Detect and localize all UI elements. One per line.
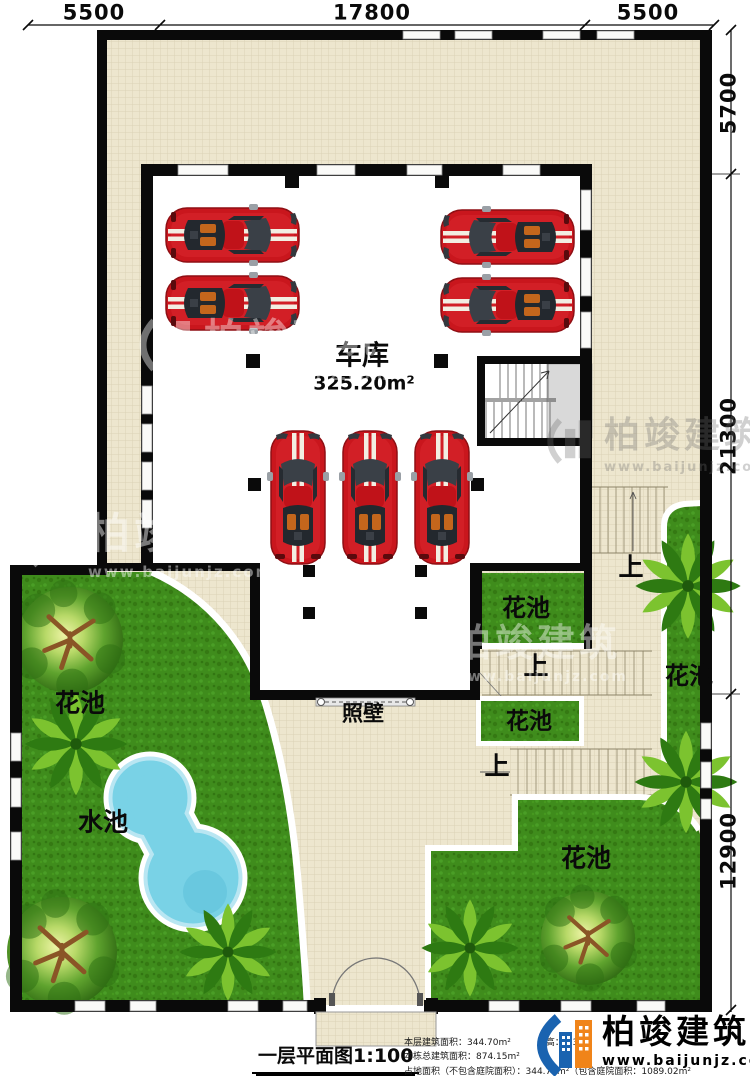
- stairs-up-label: 上: [618, 555, 643, 580]
- dim-right-lower: 12900: [719, 812, 740, 890]
- screen-wall-label: 照壁: [342, 704, 384, 725]
- pool-label: 水池: [78, 810, 128, 835]
- stairs-up-label: 上: [523, 654, 548, 679]
- dim-top-right: 5500: [617, 3, 679, 24]
- dim-right-upper: 5700: [719, 72, 740, 134]
- dim-top-center: 17800: [333, 3, 411, 24]
- floor-plan-drawing: [0, 0, 750, 1080]
- drawing-title: 一层平面图1:100: [252, 1041, 419, 1074]
- car: [411, 431, 473, 564]
- dim-right-middle: 21300: [719, 397, 740, 475]
- dim-top-left: 5500: [63, 3, 125, 24]
- garage-label: 车库: [335, 343, 389, 370]
- car: [267, 431, 329, 564]
- car: [166, 272, 299, 334]
- brand-url: www.baijunjz.com: [602, 1053, 750, 1069]
- flower-bed-label: 花池: [506, 711, 552, 734]
- floor-plan-page: 5500 17800 5500 5700 21300 12900 车库 325.…: [0, 0, 750, 1080]
- info-floor-area: 本层建筑面积：344.70m²: [404, 1038, 511, 1048]
- flower-bed-label: 花池: [561, 846, 611, 871]
- car: [441, 206, 574, 268]
- flower-bed-label: 花池: [55, 691, 105, 716]
- stairs-up-label: 上: [484, 754, 509, 779]
- brand-logo-icon: [534, 1014, 596, 1076]
- car: [339, 431, 401, 564]
- car: [441, 274, 574, 336]
- garage-area-label: 325.20m²: [313, 375, 414, 394]
- brand-name: 柏竣建筑: [602, 1014, 750, 1050]
- flower-bed-label: 花池: [502, 596, 550, 620]
- car: [166, 204, 299, 266]
- brand-logo-block: 柏竣建筑 www.baijunjz.com: [534, 1014, 750, 1076]
- flower-bed-label: 花池: [665, 664, 713, 688]
